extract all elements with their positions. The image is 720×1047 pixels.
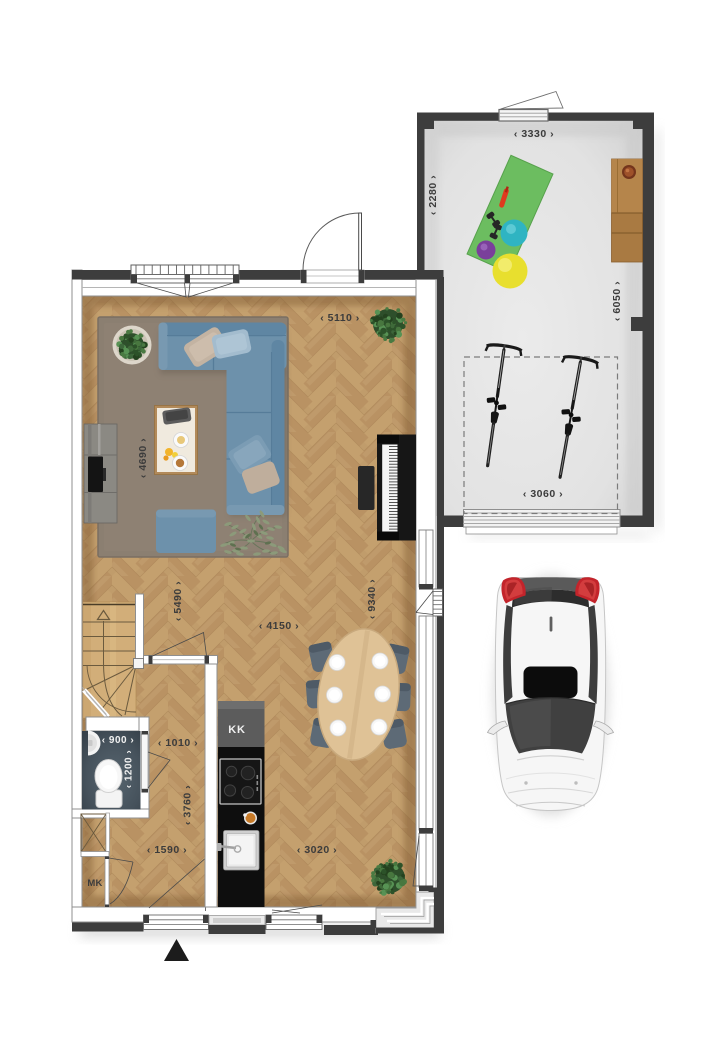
svg-text:‹ 5110 ›: ‹ 5110 › [320, 312, 360, 324]
svg-text:‹ 3060 ›: ‹ 3060 › [523, 488, 563, 500]
svg-text:‹ 4690 ›: ‹ 4690 › [137, 438, 149, 478]
svg-text:‹ 3330 ›: ‹ 3330 › [514, 128, 554, 140]
svg-text:‹ 1010 ›: ‹ 1010 › [158, 737, 198, 749]
svg-text:‹ 1200 ›: ‹ 1200 › [124, 750, 135, 788]
svg-text:‹ 900 ›: ‹ 900 › [102, 735, 134, 746]
svg-text:‹ 5490 ›: ‹ 5490 › [172, 581, 184, 621]
svg-text:‹ 4150 ›: ‹ 4150 › [259, 620, 299, 632]
svg-text:‹ 2280 ›: ‹ 2280 › [427, 175, 439, 215]
svg-text:MK: MK [87, 878, 102, 889]
svg-text:‹ 9340 ›: ‹ 9340 › [366, 579, 378, 619]
svg-text:‹ 3020 ›: ‹ 3020 › [297, 844, 337, 856]
svg-text:‹ 6050 ›: ‹ 6050 › [611, 281, 623, 321]
svg-text:KK: KK [228, 724, 246, 736]
svg-text:‹ 1590 ›: ‹ 1590 › [147, 844, 187, 856]
svg-text:‹ 3760 ›: ‹ 3760 › [182, 785, 194, 825]
